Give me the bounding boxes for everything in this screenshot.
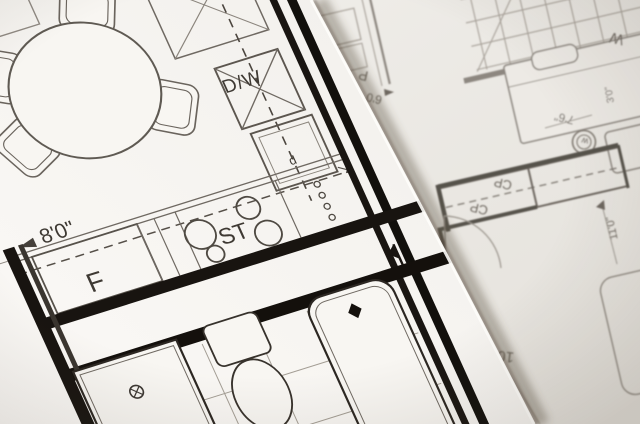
vignette: [0, 0, 640, 424]
blueprint-canvas: w CP CP W: [0, 0, 640, 424]
blueprint-photo: w CP CP W: [0, 0, 640, 424]
